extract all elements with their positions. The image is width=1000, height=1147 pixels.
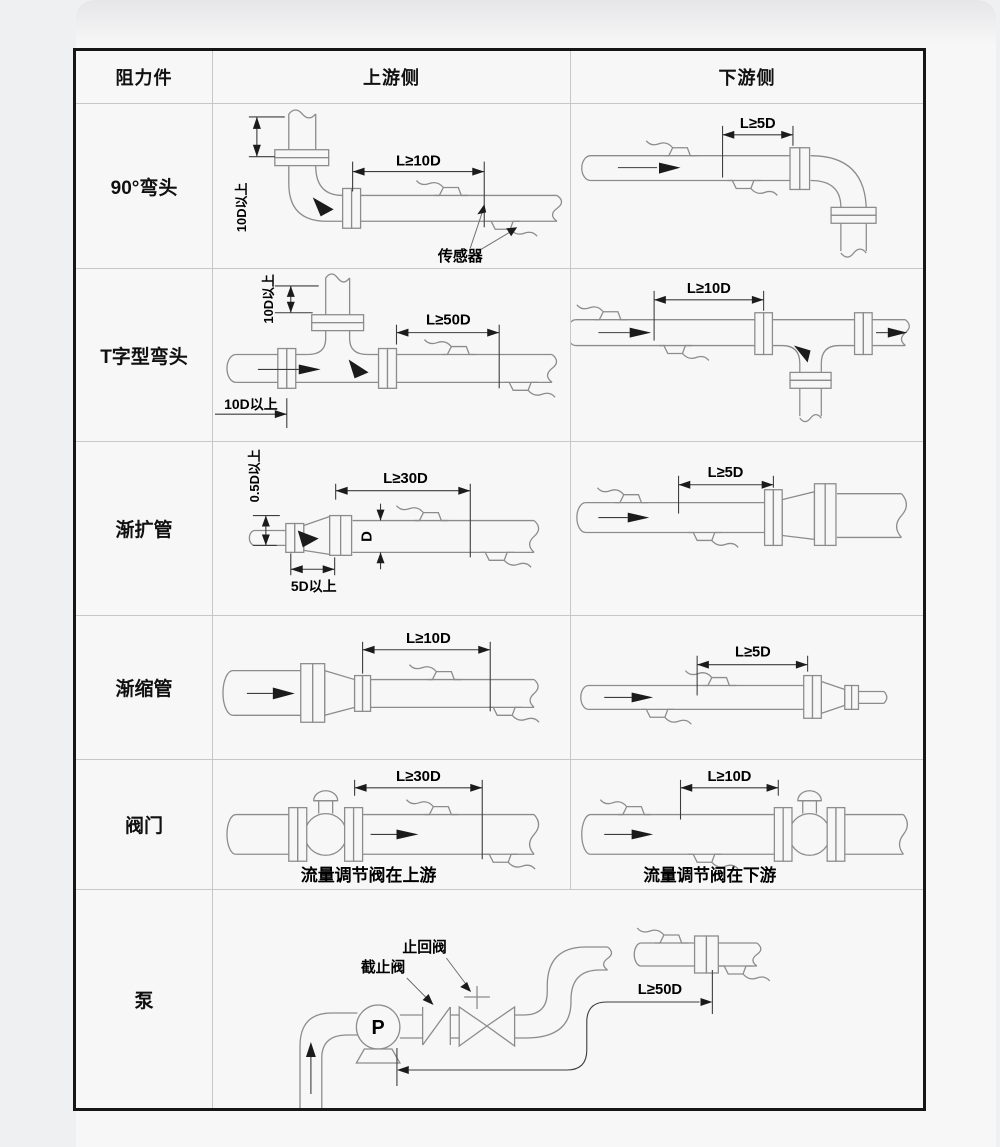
row-label-pump: 泵 [76,890,213,1108]
sensor-clamp-icon [641,709,691,724]
diagram-cell-expander-downstream: L≥5D [571,442,923,616]
dimension-lines [249,117,484,227]
sensor-clamp-icon [659,346,709,361]
diagram-cell-reducer-downstream: L≥5D [571,616,923,760]
sensor-clamp-icon [416,181,468,196]
valve-stem [314,791,338,814]
header-resistance-label: 阻力件 [116,64,173,90]
flow-arrow-icon [349,359,369,378]
sensor-clamp-icon [424,340,476,355]
dim-label-vertical: 10D以上 [234,183,249,233]
header-upstream: 上游侧 [213,51,571,104]
expander-cone [782,492,814,540]
row-label-text: 90°弯头 [111,173,178,200]
sensor-clamp-icon [688,532,738,547]
flanges [275,150,361,229]
diagram-cell-reducer-upstream: L≥10D [213,616,571,760]
sensor-clamp-icon [577,305,628,320]
diagram-90-elbow-downstream: L≥5D [571,104,923,268]
diagram-cell-valve-upstream: L≥30D 流量调节阀在上游 [213,760,571,890]
sensor-clamp-icon [727,181,777,196]
row-label-text: 泵 [134,986,153,1013]
diagram-cell-90-elbow-upstream: L≥10D 10D以上 传感器 [213,104,571,269]
pipe-lines [582,156,867,257]
dim-label: L≥30D [383,470,428,487]
diagram-reducer-downstream: L≥5D [571,616,923,759]
flow-arrow-icon [306,1042,316,1057]
flow-arrow-icon [659,163,681,174]
sensor-clamp-icon [396,506,448,521]
row-label-text: 渐扩管 [115,515,172,542]
diagram-pump: P 截止阀 止回阀 L≥50D [213,890,923,1108]
row-label-tee-elbow: T字型弯头 [76,269,213,442]
sensor-clamp-icon [504,382,555,397]
reducer-cone [325,671,355,716]
flow-arrow-icon [632,829,654,839]
sensor-clamp-icon [409,665,461,680]
pump-base [356,1049,400,1063]
flanges [755,313,872,389]
sensor-clamp-icon [685,671,736,686]
flow-arrow-icon [794,346,811,363]
diagram-cell-valve-downstream: L≥10D 流量调节阀在下游 [571,760,923,890]
sensor-clamp-icon [719,966,769,981]
check-valve-label: 止回阀 [402,938,446,956]
diagram-tee-downstream: L≥10D [571,269,923,441]
sensor-clamp-icon [488,707,539,722]
reducer-cone [821,682,844,714]
header-downstream: 下游侧 [571,51,923,104]
dim-label: L≥5D [735,645,771,661]
valve-body [789,814,830,856]
dim-label: 5D以上 [291,578,337,594]
sensor-clamp-icon [646,141,697,156]
dimension-lines [654,291,764,341]
flow-arrow-icon [888,328,908,338]
row-label-text: 阀门 [125,811,163,838]
dim-label-vertical: D [359,531,376,542]
flow-arrow-icon [630,328,652,338]
valve-body [305,814,347,856]
sensor-label: 传感器 [437,247,484,265]
row-label-reducer: 渐缩管 [76,616,213,760]
dim-label: L≥50D [638,982,683,998]
flow-arrow-icon [628,513,650,523]
top-shade [76,0,996,46]
diagram-cell-expander-upstream: L≥30D 0.5D以上 D 5D以上 [213,442,571,616]
dimension-lines [681,780,779,820]
diagram-90-elbow-upstream: L≥10D 10D以上 传感器 [213,104,570,268]
pipe-lines [577,494,907,538]
flanges [278,315,397,389]
caption-label: 流量调节阀在上游 [301,865,437,885]
diagram-expander-downstream: L≥5D [571,442,923,615]
flanges [695,936,719,973]
dim-label: L≥10D [396,153,441,170]
header-resistance-element: 阻力件 [76,51,213,104]
pump-label: P [372,1017,385,1039]
dim-label: L≥5D [708,465,744,481]
dim-label: 10D以上 [224,396,278,412]
dimension-arrows [253,117,484,216]
valve-stem [798,791,821,814]
diagram-cell-tee-downstream: L≥10D [571,269,923,442]
sensor-clamp-icon [597,488,648,503]
header-upstream-label: 上游侧 [363,64,420,90]
dim-label: L≥10D [707,769,751,785]
flow-arrow-icon [396,829,418,839]
valve-leaders [407,958,471,1005]
diagram-cell-90-elbow-downstream: L≥5D [571,104,923,269]
row-label-expander: 渐扩管 [76,442,213,616]
diagram-cell-tee-upstream: L≥50D 10D以上 10D以上 [213,269,571,442]
row-label-text: 渐缩管 [115,674,172,701]
dim-label: L≥10D [406,630,451,647]
row-label-90-elbow: 90°弯头 [76,104,213,269]
dimension-lines [679,476,774,514]
dim-label: L≥10D [687,281,731,297]
dimension-lines [697,656,807,696]
row-label-text: T字型弯头 [100,342,188,369]
sensor-clamp-icon [637,928,688,943]
diagram-expander-upstream: L≥30D 0.5D以上 D 5D以上 [213,442,570,615]
caption-label: 流量调节阀在下游 [643,865,776,885]
sensor-clamp-icon [406,800,458,815]
diagram-valve-upstream: L≥30D 流量调节阀在上游 [213,760,570,889]
diagram-valve-downstream: L≥10D 流量调节阀在下游 [571,760,923,889]
header-downstream-label: 下游侧 [719,64,776,90]
diagram-reducer-upstream: L≥10D [213,616,570,759]
sensor-clamp-icon [600,800,651,815]
row-label-valve: 阀门 [76,760,213,890]
flow-arrow-icon [299,364,321,374]
dim-label-vertical: 10D以上 [261,274,276,324]
diagram-tee-upstream: L≥50D 10D以上 10D以上 [213,269,570,441]
dim-label: L≥50D [426,312,471,329]
flow-arrow-icon [313,197,334,216]
dim-label-vertical: 0.5D以上 [247,449,262,502]
dim-label: L≥5D [740,116,776,132]
dimension-lines [355,780,483,859]
sensor-clamp-icon [480,552,531,567]
flow-arrow-icon [273,688,295,700]
flow-arrow-icon [632,692,654,702]
dimension-lines [363,642,491,712]
installation-table: 阻力件 上游侧 下游侧 90°弯头 [73,48,926,1111]
dim-label: L≥30D [396,768,441,785]
sensor-clamp-icon [484,854,535,869]
diagram-cell-pump: P 截止阀 止回阀 L≥50D [213,890,923,1108]
stop-valve-label: 截止阀 [361,958,405,976]
